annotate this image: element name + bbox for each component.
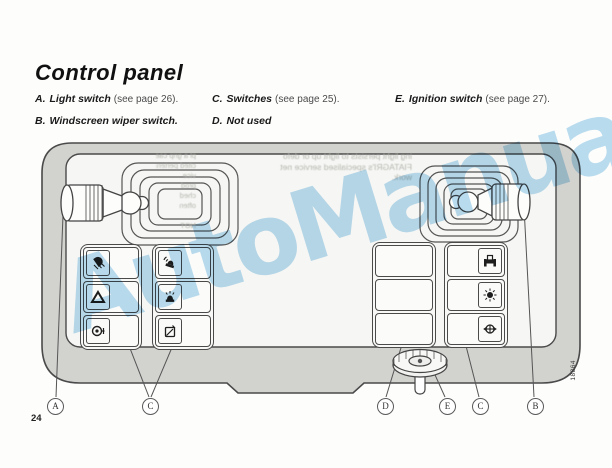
- hazard-warning-icon: [86, 284, 110, 310]
- page-number: 24: [31, 413, 42, 424]
- switch-blank: [375, 245, 433, 277]
- switch-group-left-2: [152, 244, 214, 350]
- switch-group-left-1: [80, 244, 142, 350]
- beacon-icon: [158, 284, 182, 310]
- work-light-icon: [86, 318, 110, 344]
- switch-beacon: [155, 281, 211, 313]
- switch-tractor: [447, 245, 505, 277]
- tractor-icon: [478, 248, 502, 274]
- callout-d: D: [377, 398, 394, 415]
- differential-lock-icon: [478, 316, 502, 342]
- switch-warning-light: [447, 279, 505, 311]
- ignition-switch: [393, 350, 447, 395]
- switch-work-light: [83, 315, 139, 347]
- switch-blank: [375, 279, 433, 311]
- switch-rotating-beacon: [155, 247, 211, 279]
- switch-screen-washer: [155, 315, 211, 347]
- callout-e: E: [439, 398, 456, 415]
- callout-b: B: [527, 398, 544, 415]
- callout-c-right: C: [472, 398, 489, 415]
- switch-group-blank: [372, 242, 436, 348]
- switch-front-fog: [83, 247, 139, 279]
- switch-hazard: [83, 281, 139, 313]
- switch-diff-lock: [447, 313, 505, 345]
- switch-blank: [375, 313, 433, 345]
- front-fog-light-icon: [86, 250, 110, 276]
- callout-c-left: C: [142, 398, 159, 415]
- switch-group-right: [444, 242, 508, 348]
- rotating-beacon-icon: [158, 250, 182, 276]
- callout-a: A: [47, 398, 64, 415]
- control-panel-figure: pl a grip caecr will cited pertenne of F…: [0, 0, 612, 468]
- figure-code: 18864: [570, 360, 577, 381]
- screen-washer-icon: [158, 318, 182, 344]
- warning-light-icon: [478, 282, 502, 308]
- manual-page: Control panel A.Light switch(see page 26…: [0, 0, 612, 468]
